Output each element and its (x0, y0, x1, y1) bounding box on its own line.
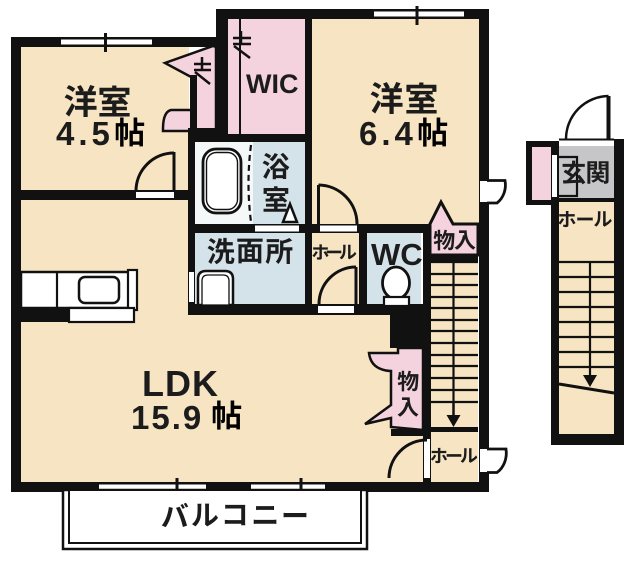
svg-text:4.5: 4.5 (56, 115, 114, 152)
svg-text:6.4: 6.4 (359, 115, 417, 152)
svg-text:WIC: WIC (246, 69, 298, 99)
svg-text:WC: WC (371, 237, 423, 272)
svg-text:LDK: LDK (142, 363, 219, 404)
svg-text:15.9: 15.9 (131, 399, 203, 436)
